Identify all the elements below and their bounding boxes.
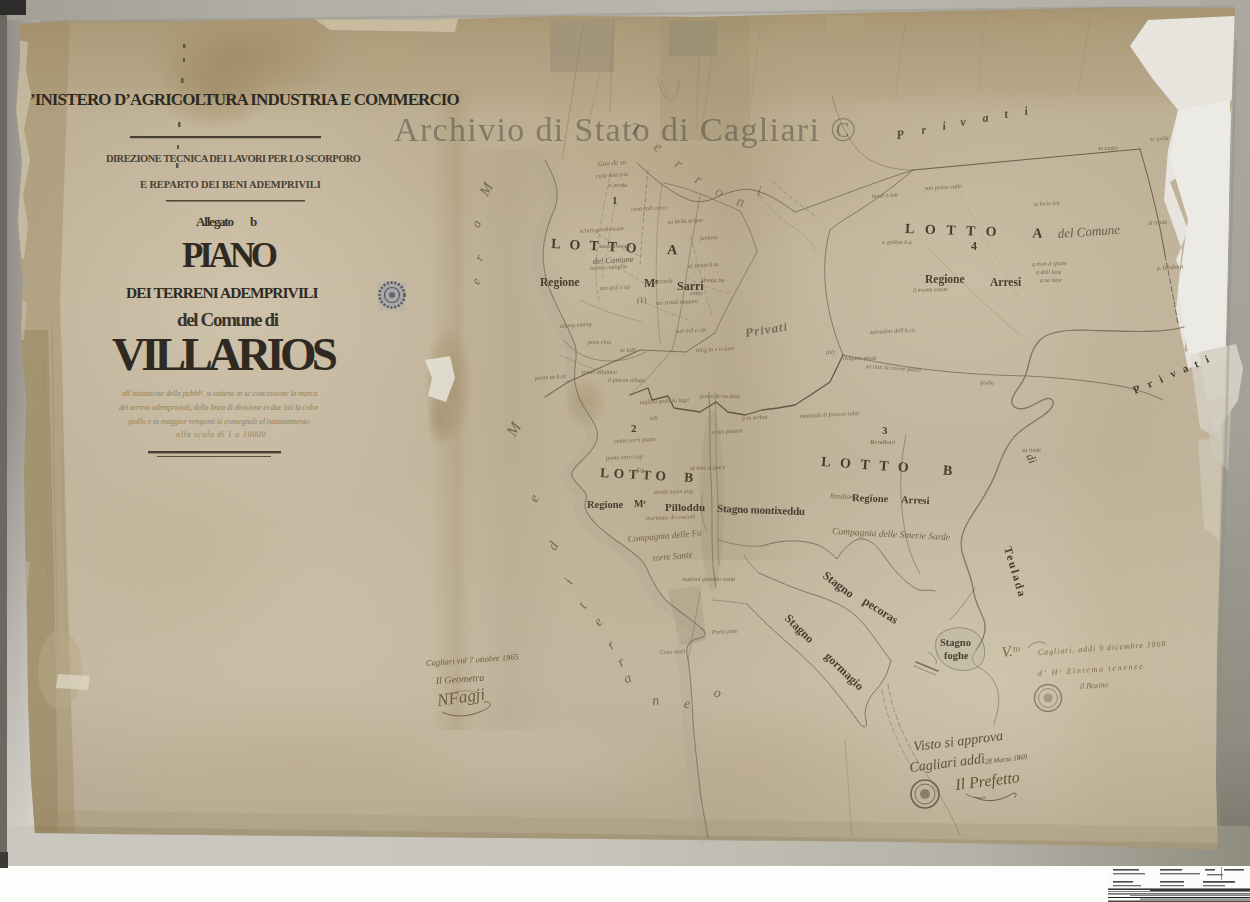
svg-text:Allegato: Allegato: [196, 214, 234, 229]
svg-text:q mon d spane: q mon d spane: [1032, 260, 1067, 267]
svg-text:b: b: [250, 214, 257, 229]
svg-text:se billi: se billi: [620, 347, 636, 353]
svg-text:foghe: foghe: [944, 650, 969, 661]
svg-text:stazioni guardia costa: stazioni guardia costa: [682, 576, 735, 582]
svg-text:(b): (b): [636, 467, 643, 474]
svg-text:il monte estate: il monte estate: [913, 286, 949, 293]
svg-text:sa ender: sa ender: [1098, 145, 1119, 151]
svg-text:allʼattuazione della pubblᵃ. s: allʼattuazione della pubblᵃ. si astiene …: [122, 389, 318, 398]
svg-text:il piscou allogu: il piscou allogu: [608, 377, 645, 383]
svg-text:s. guilan b.a: s. guilan b.a: [882, 239, 912, 245]
svg-text:PIANO: PIANO: [182, 236, 282, 275]
svg-text:passu de sa lana: passu de sa lana: [699, 393, 740, 399]
svg-text:Archivio di Stato di Cagliari: Archivio di Stato di Cagliari ©: [394, 111, 856, 148]
svg-text:DIREZIONE TECNICA DEI LAVORI P: DIREZIONE TECNICA DEI LAVORI PER LO SCOR…: [106, 153, 362, 164]
svg-text:giallo: giallo: [980, 379, 994, 386]
svg-text:VILLARIOS: VILLARIOS: [112, 328, 343, 380]
svg-text:donga ba: donga ba: [702, 277, 725, 283]
svg-text:4: 4: [971, 239, 977, 253]
svg-text:Regione: Regione: [925, 273, 965, 286]
svg-text:giallo e in maggior vengonti s: giallo e in maggior vengonti si consegna…: [128, 417, 310, 426]
svg-text:sasso comuni: sasso comuni: [599, 243, 632, 249]
svg-text:ʼINISTERO DʼAGRICOLTURA INDUS: ʼINISTERO DʼAGRICOLTURA INDUSTRIA E COMM…: [30, 90, 462, 109]
svg-text:sa tinde: sa tinde: [1022, 447, 1041, 453]
svg-text:Mʳ: Mʳ: [634, 498, 646, 509]
svg-text:funtana: funtana: [700, 234, 719, 241]
svg-text:Regïone: Regïone: [587, 499, 624, 510]
svg-text:2: 2: [631, 422, 637, 434]
svg-text:Regïone: Regïone: [852, 492, 889, 504]
svg-text:Casa mori: Casa mori: [660, 648, 686, 655]
svg-text:del Comune di: del Comune di: [177, 309, 280, 330]
svg-text:(b): (b): [570, 280, 577, 287]
svg-text:DEI TERRENI ADEMPRIVILI: DEI TERRENI ADEMPRIVILI: [126, 284, 320, 301]
svg-text:cottu: cottu: [690, 290, 702, 296]
svg-text:ilsiguno piede: ilsiguno piede: [843, 355, 877, 361]
svg-text:ponte allutimo: ponte allutimo: [581, 369, 617, 375]
svg-text:alla scala di 1 a 10000: alla scala di 1 a 10000: [176, 430, 266, 439]
svg-text:Arresi: Arresi: [901, 494, 930, 506]
svg-text:teli: teli: [650, 415, 658, 421]
svg-text:q doll lane: q doll lane: [1036, 269, 1062, 275]
svg-text:E REPARTO DEI BENI ADEMPRIVILI: E REPARTO DEI BENI ADEMPRIVILI: [140, 179, 322, 190]
svg-text:(al): (al): [826, 349, 835, 356]
svg-text:V.ᵗᵒ: V.ᵗᵒ: [1001, 642, 1021, 660]
svg-text:pora clou: pora clou: [587, 339, 611, 345]
svg-text:Stagno: Stagno: [940, 637, 971, 648]
svg-text:e: e: [684, 696, 691, 711]
svg-text:1: 1: [612, 194, 618, 206]
svg-text:Arresi: Arresi: [990, 276, 1022, 288]
svg-text:si perda: si perda: [608, 182, 627, 188]
svg-text:(1): (1): [637, 296, 647, 305]
svg-text:Pilloddu: Pilloddu: [665, 501, 705, 513]
svg-text:dei terreni adempriviali, dell: dei terreni adempriviali, della linea di…: [119, 403, 319, 412]
svg-text:q sa lane: q sa lane: [1040, 277, 1062, 283]
svg-text:3: 3: [882, 424, 888, 436]
svg-text:al timi acque e: al timi acque e: [690, 464, 726, 471]
svg-text:Rendioni: Rendioni: [869, 438, 895, 446]
